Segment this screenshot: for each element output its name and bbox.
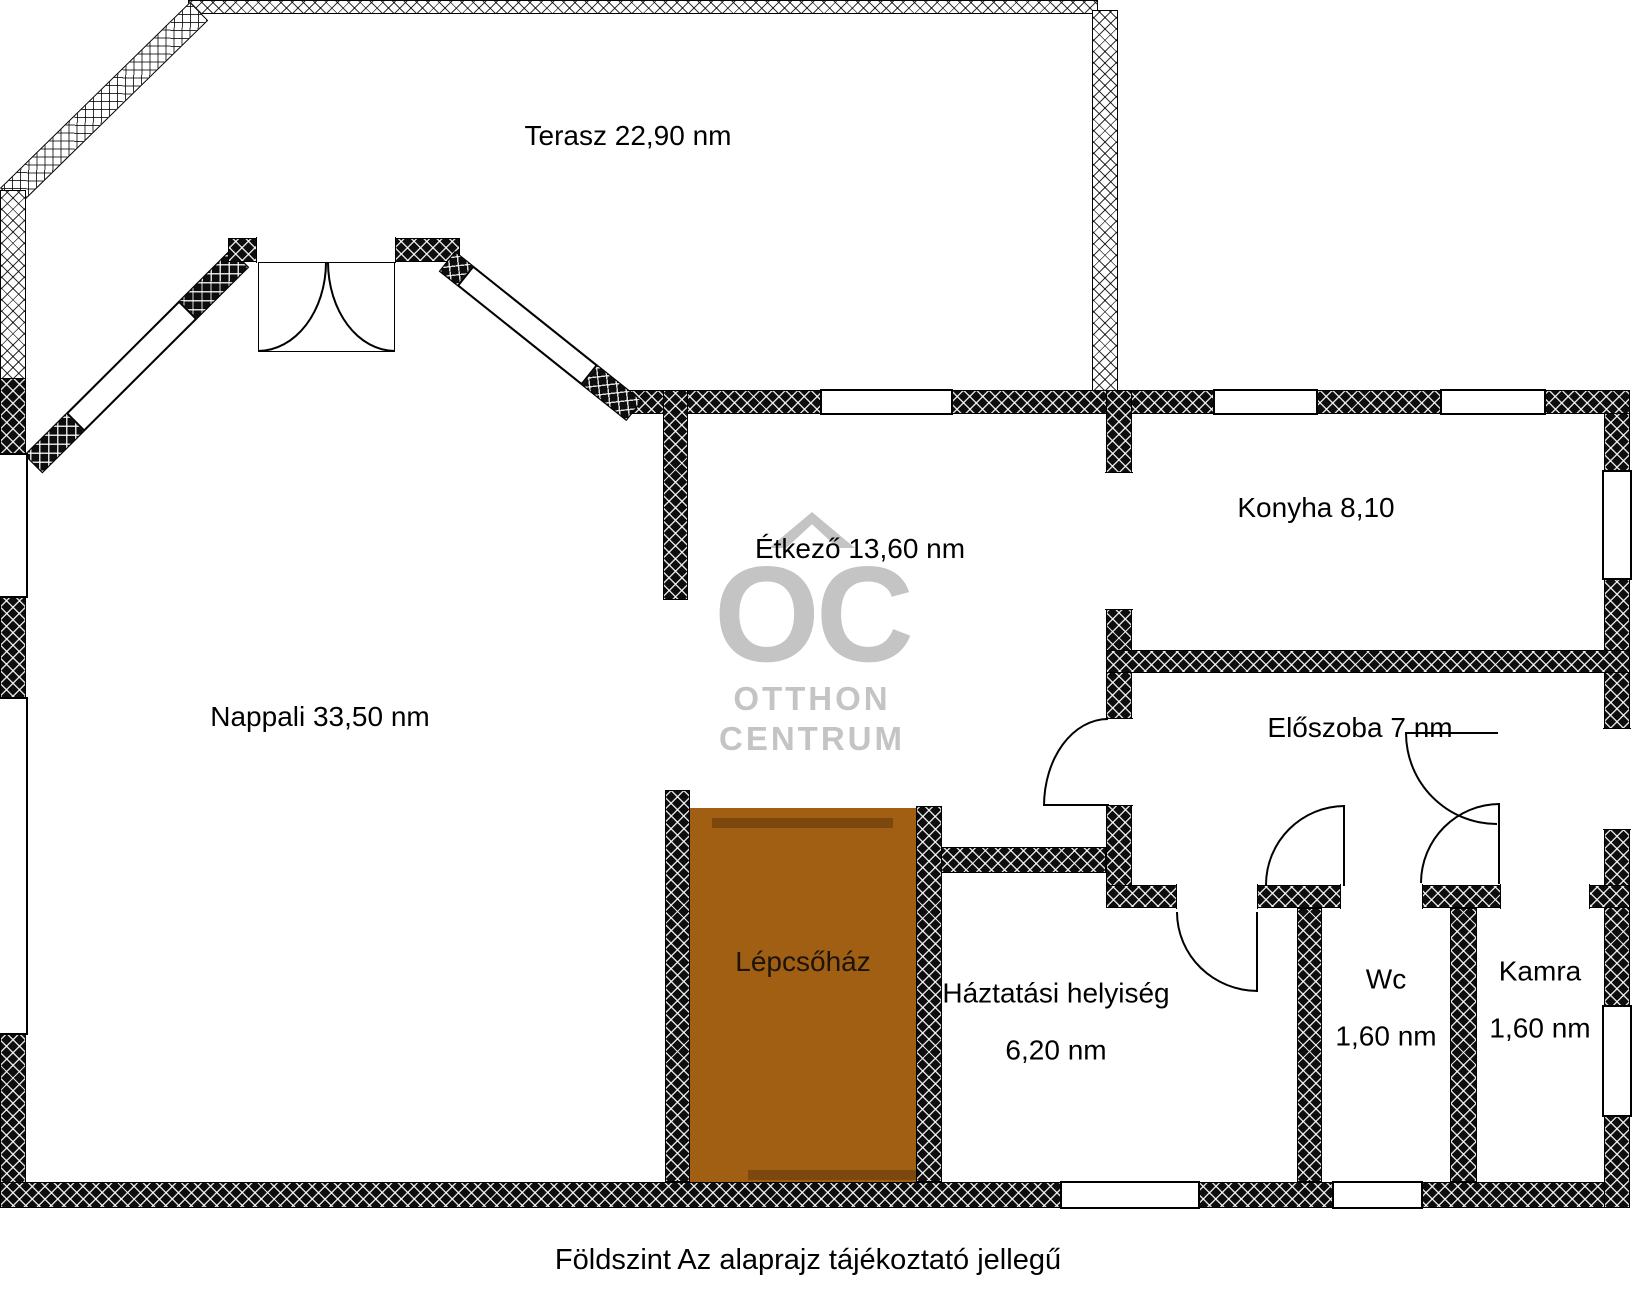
kamra-door-swing-arc <box>1420 803 1500 883</box>
terrace-door-opening <box>256 237 396 263</box>
eloszoba-door-swing-arc <box>1043 718 1108 806</box>
plan-caption: Földszint Az alaprajz tájékoztató jelleg… <box>555 1244 1061 1277</box>
stairwell-wall-left <box>665 790 690 1182</box>
room-label-wc: Wc 1,60 nm <box>1335 951 1436 1066</box>
opening-kamra-door <box>1500 884 1590 909</box>
room-label-nappali: Nappali 33,50 nm <box>210 701 429 733</box>
terrace-wall-top <box>188 0 1098 14</box>
room-label-haztartasi: Háztatási helyiség 6,20 nm <box>942 965 1169 1080</box>
room-label-eloszoba: Előszoba 7 nm <box>1267 712 1452 744</box>
opening-etkezo-konyha <box>1105 472 1133 610</box>
wall-etkezo-konyha-eloszoba <box>1106 390 1132 908</box>
opening-haztartasi-door <box>1176 884 1258 909</box>
watermark-centrum: CENTRUM <box>714 719 910 759</box>
wall-wc-kamra <box>1450 908 1477 1182</box>
room-label-etkezo: Étkező 13,60 nm <box>755 533 965 565</box>
eloszoba-door-leaf <box>1043 804 1109 806</box>
room-label-kamra-name: Kamra <box>1489 943 1590 1000</box>
terrace-wall-right <box>1092 10 1118 392</box>
window-nappali-left-upper <box>0 453 28 598</box>
wc-door-swing-arc <box>1265 805 1345 885</box>
window-bottom-wc <box>1332 1181 1423 1209</box>
wc-door-leaf <box>1343 805 1345 886</box>
wall-nappali-etkezo <box>663 390 688 600</box>
watermark-otthon: OTTHON <box>714 679 910 719</box>
watermark-oc: OC <box>714 550 910 679</box>
room-label-haztartasi-area: 6,20 nm <box>942 1022 1169 1079</box>
window-bottom-haztartasi <box>1060 1181 1200 1209</box>
bay-window-right <box>457 265 598 385</box>
room-label-konyha: Konyha 8,10 <box>1237 492 1394 524</box>
terrace-wall-diagonal <box>0 2 208 207</box>
floor-plan: OC OTTHON CENTRUM <box>0 0 1636 1302</box>
room-label-lepcsohaz: Lépcsőház <box>735 946 870 978</box>
room-label-wc-area: 1,60 nm <box>1335 1008 1436 1065</box>
room-label-haztartasi-name: Háztatási helyiség <box>942 965 1169 1022</box>
room-label-kamra-area: 1,60 nm <box>1489 1000 1590 1057</box>
haztartasi-door-swing-arc <box>1176 912 1258 992</box>
room-label-terasz: Terasz 22,90 nm <box>525 120 732 152</box>
wall-wc-left <box>1297 908 1322 1182</box>
terrace-wall-left <box>0 190 26 380</box>
window-konyha-right <box>1602 470 1632 580</box>
window-nappali-left-lower <box>0 697 28 1035</box>
bay-window-left <box>66 300 198 431</box>
haztartasi-door-leaf <box>1256 912 1258 992</box>
window-konyha-top-1 <box>1213 389 1318 415</box>
room-label-wc-name: Wc <box>1335 951 1436 1008</box>
bay-wall-right-diagonal <box>439 251 643 421</box>
window-konyha-top-2 <box>1440 389 1546 415</box>
wall-haztartasi-top <box>941 847 1106 873</box>
opening-etkezo-eloszoba <box>1105 718 1133 806</box>
bay-wall-left-diagonal <box>24 249 249 474</box>
stairwell-floor <box>690 808 916 1182</box>
stairwell-trim-bottom <box>748 1170 916 1180</box>
stairwell-wall-right <box>916 806 942 1182</box>
stairwell-trim-top <box>712 818 893 828</box>
opening-entrance <box>1603 728 1631 830</box>
room-label-kamra: Kamra 1,60 nm <box>1489 943 1590 1058</box>
window-etkezo-top <box>820 389 953 415</box>
opening-wc-door <box>1340 884 1423 909</box>
kamra-door-leaf <box>1498 803 1500 884</box>
wall-konyha-bottom <box>1106 650 1630 673</box>
window-kamra-right <box>1602 1005 1632 1117</box>
